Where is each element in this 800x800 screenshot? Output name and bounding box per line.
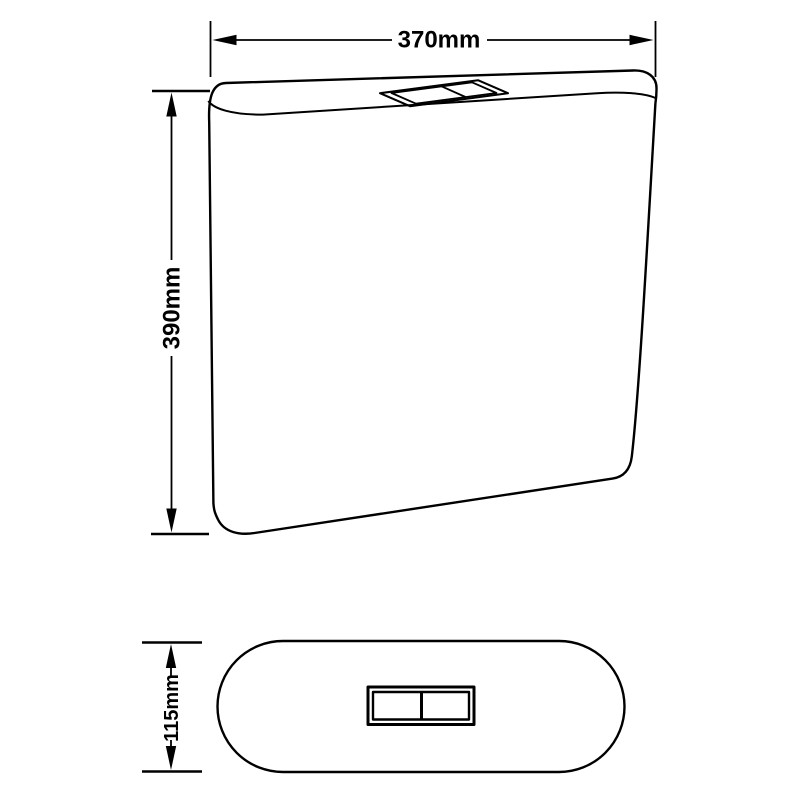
width-arrow-left-icon xyxy=(213,35,237,45)
depth-arrow-up-icon xyxy=(166,644,176,668)
height-arrow-up-icon xyxy=(166,93,176,117)
flush-button-front-divider xyxy=(442,86,466,97)
plan-view: 115mm xyxy=(142,641,625,772)
flush-button-plan xyxy=(368,687,474,725)
cistern-technical-drawing: 370mm 390mm xyxy=(0,0,800,800)
width-arrow-right-icon xyxy=(630,35,654,45)
width-dimension-label: 370mm xyxy=(398,27,481,54)
height-arrow-down-icon xyxy=(166,509,176,533)
height-dimension-label: 390mm xyxy=(159,267,186,350)
depth-arrow-down-icon xyxy=(166,746,176,770)
front-view: 370mm 390mm xyxy=(151,21,657,534)
flush-button-front xyxy=(380,80,508,106)
technical-drawing-page: 370mm 390mm xyxy=(0,0,800,800)
height-dimension: 390mm xyxy=(151,91,210,534)
width-dimension: 370mm xyxy=(211,21,656,77)
depth-dimension: 115mm xyxy=(142,643,202,772)
cistern-front-outline xyxy=(209,70,656,533)
depth-dimension-label: 115mm xyxy=(161,674,183,742)
